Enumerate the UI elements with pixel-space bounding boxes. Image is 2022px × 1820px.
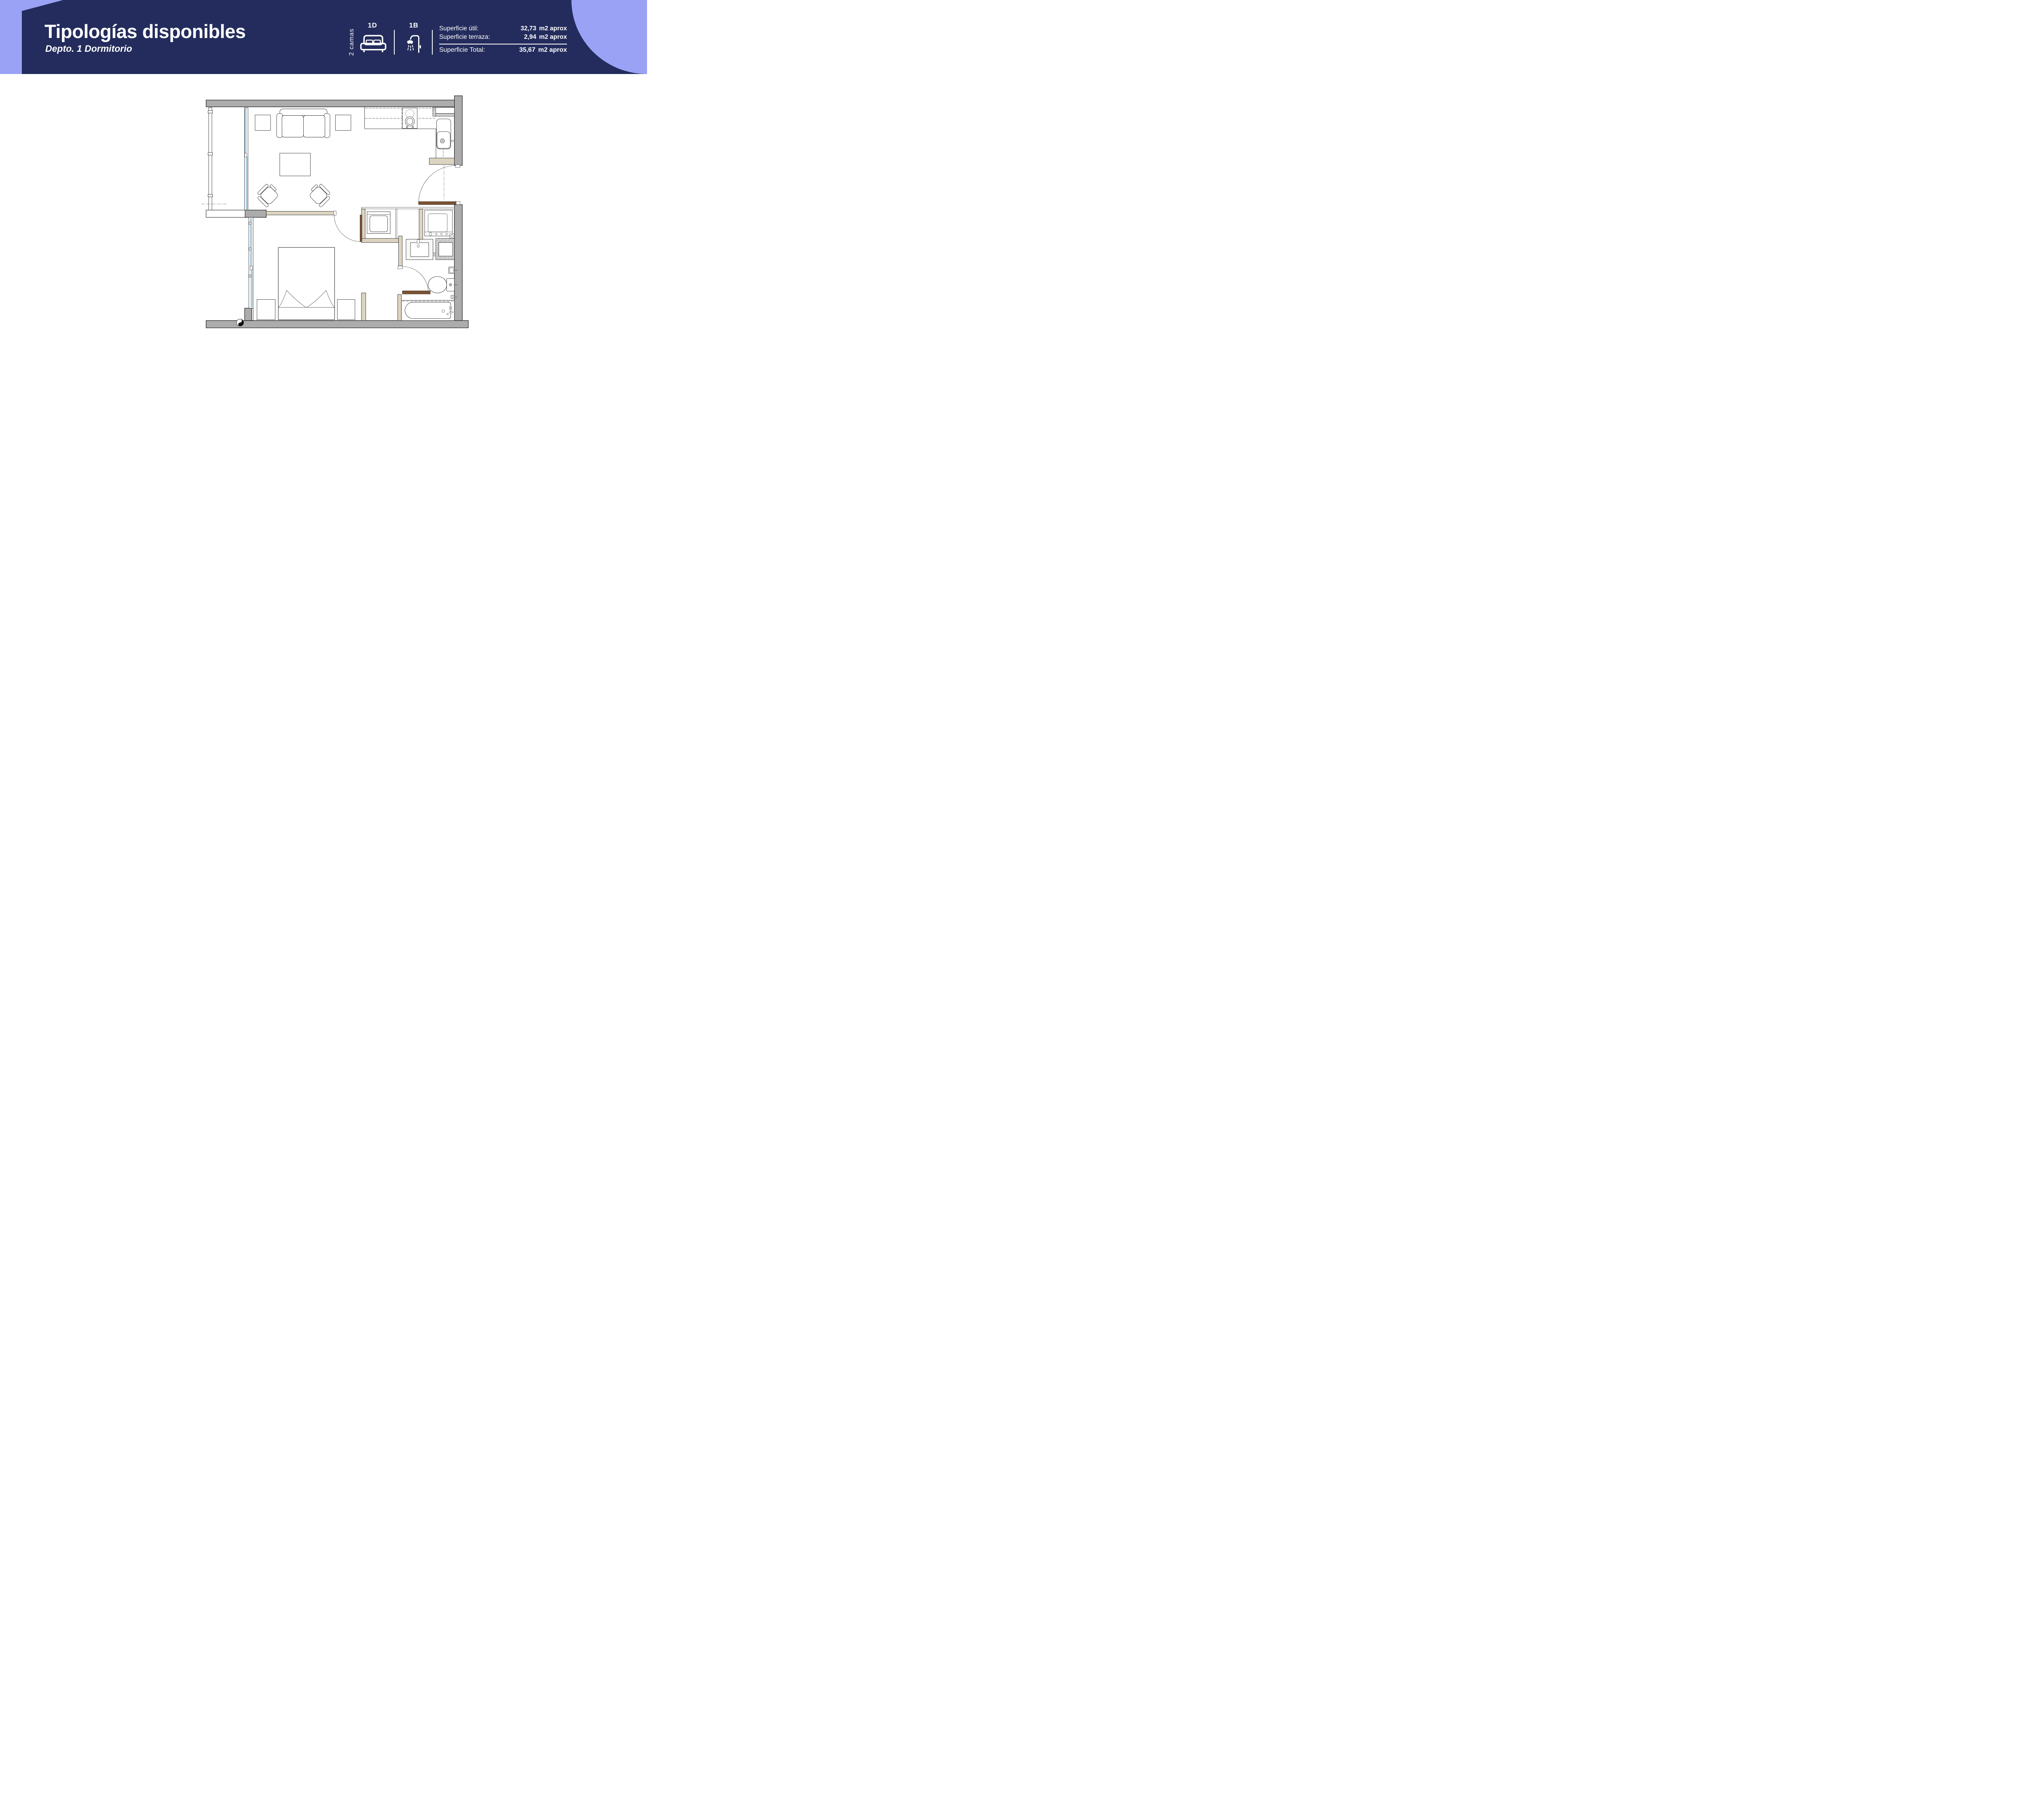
double-bed-icon <box>359 35 387 52</box>
bathroom-door-arc <box>402 267 428 292</box>
tile-strip-horizontal <box>436 114 454 116</box>
bathroom-door-leaf <box>402 291 430 294</box>
bedroom-door-arc <box>334 215 361 241</box>
area-row-util: Superficie útil: 32,73 m2 aprox <box>439 25 567 34</box>
page-subtitle: Depto. 1 Dormitorio <box>45 43 132 54</box>
annotations <box>201 203 243 326</box>
column-hatch <box>252 308 253 320</box>
sofa <box>277 109 330 138</box>
bathtub <box>402 300 455 320</box>
nightstand-right <box>337 299 355 320</box>
area-row-total: Superficie Total: 35,67 m2 aprox <box>439 47 567 56</box>
shower-icon <box>406 34 421 53</box>
washing-machine <box>367 212 390 233</box>
floor-drain <box>450 234 454 238</box>
bathroom <box>402 239 457 321</box>
area-value: 35,67 <box>514 47 535 54</box>
right-wall-lower <box>455 205 463 321</box>
closet-top-edge <box>362 207 455 209</box>
area-value: 32,73 <box>515 25 536 32</box>
right-wall-upper <box>455 96 463 165</box>
kitchen-end-wall <box>429 158 455 165</box>
bedroom <box>257 248 355 320</box>
terrace-divider-column <box>245 210 266 217</box>
kitchen-counter-edge <box>365 107 436 158</box>
bedroom-window <box>249 217 253 308</box>
vanity-sink <box>406 239 433 260</box>
kitchen <box>365 107 455 200</box>
area-row-terraza: Superficie terraza: 2,94 m2 aprox <box>439 34 567 42</box>
cooktop <box>402 108 417 128</box>
terrace-railing <box>208 108 212 210</box>
living-room <box>255 109 351 207</box>
bathroom-left-wall <box>399 236 402 266</box>
terrace-slab <box>206 210 245 217</box>
terrace-sliding-door <box>244 108 248 210</box>
tiled-shaft <box>434 239 455 260</box>
bedroom-east-wall <box>362 293 366 320</box>
entry-door-arc <box>419 165 456 203</box>
bathtub-side-wall <box>398 294 401 321</box>
armchair-right <box>307 182 333 207</box>
bedroom-north-wall <box>266 212 334 215</box>
top-wall <box>206 100 455 107</box>
header-divider-1 <box>394 30 395 55</box>
bedroom-door-leaf <box>360 215 362 241</box>
side-table-right <box>336 115 351 130</box>
area-label: Superficie terraza: <box>439 34 515 41</box>
beds-count-label: 2 camas <box>348 28 355 55</box>
bathrooms-code-label: 1B <box>409 21 419 30</box>
area-label: Superficie Total: <box>439 47 514 54</box>
armchair-left <box>255 182 281 207</box>
area-value: 2,94 <box>515 34 536 41</box>
side-table-left <box>255 115 271 130</box>
entry-door-leaf <box>419 201 456 205</box>
nightstand-left <box>257 299 275 320</box>
page-title: Tipologías disponibles <box>44 20 245 42</box>
typology-sheet: Tipologías disponibles Depto. 1 Dormitor… <box>0 0 647 364</box>
coffee-table <box>280 153 311 176</box>
bottom-wall <box>206 321 468 328</box>
area-label: Superficie útil: <box>439 25 515 32</box>
closet-bottom-wall <box>362 239 399 243</box>
bedrooms-code-label: 1D <box>368 21 377 30</box>
area-unit: m2 aprox <box>539 34 567 41</box>
area-unit: m2 aprox <box>538 47 567 54</box>
header-divider-2 <box>432 30 433 55</box>
water-heater-unit <box>425 210 453 236</box>
area-summary: Superficie útil: 32,73 m2 aprox Superfic… <box>439 25 567 56</box>
toilet <box>428 277 457 293</box>
area-unit: m2 aprox <box>539 25 567 32</box>
kitchen-sink <box>437 119 455 149</box>
column-symbol <box>237 319 244 326</box>
tile-strip-vertical <box>433 107 436 116</box>
window-end-column <box>245 308 252 321</box>
floorplan-svg <box>201 95 473 334</box>
laundry-closet <box>362 207 455 238</box>
corner-counter <box>436 107 454 113</box>
bed <box>278 248 334 320</box>
closet-mid-wall <box>419 209 423 239</box>
total-divider-line <box>439 44 567 44</box>
